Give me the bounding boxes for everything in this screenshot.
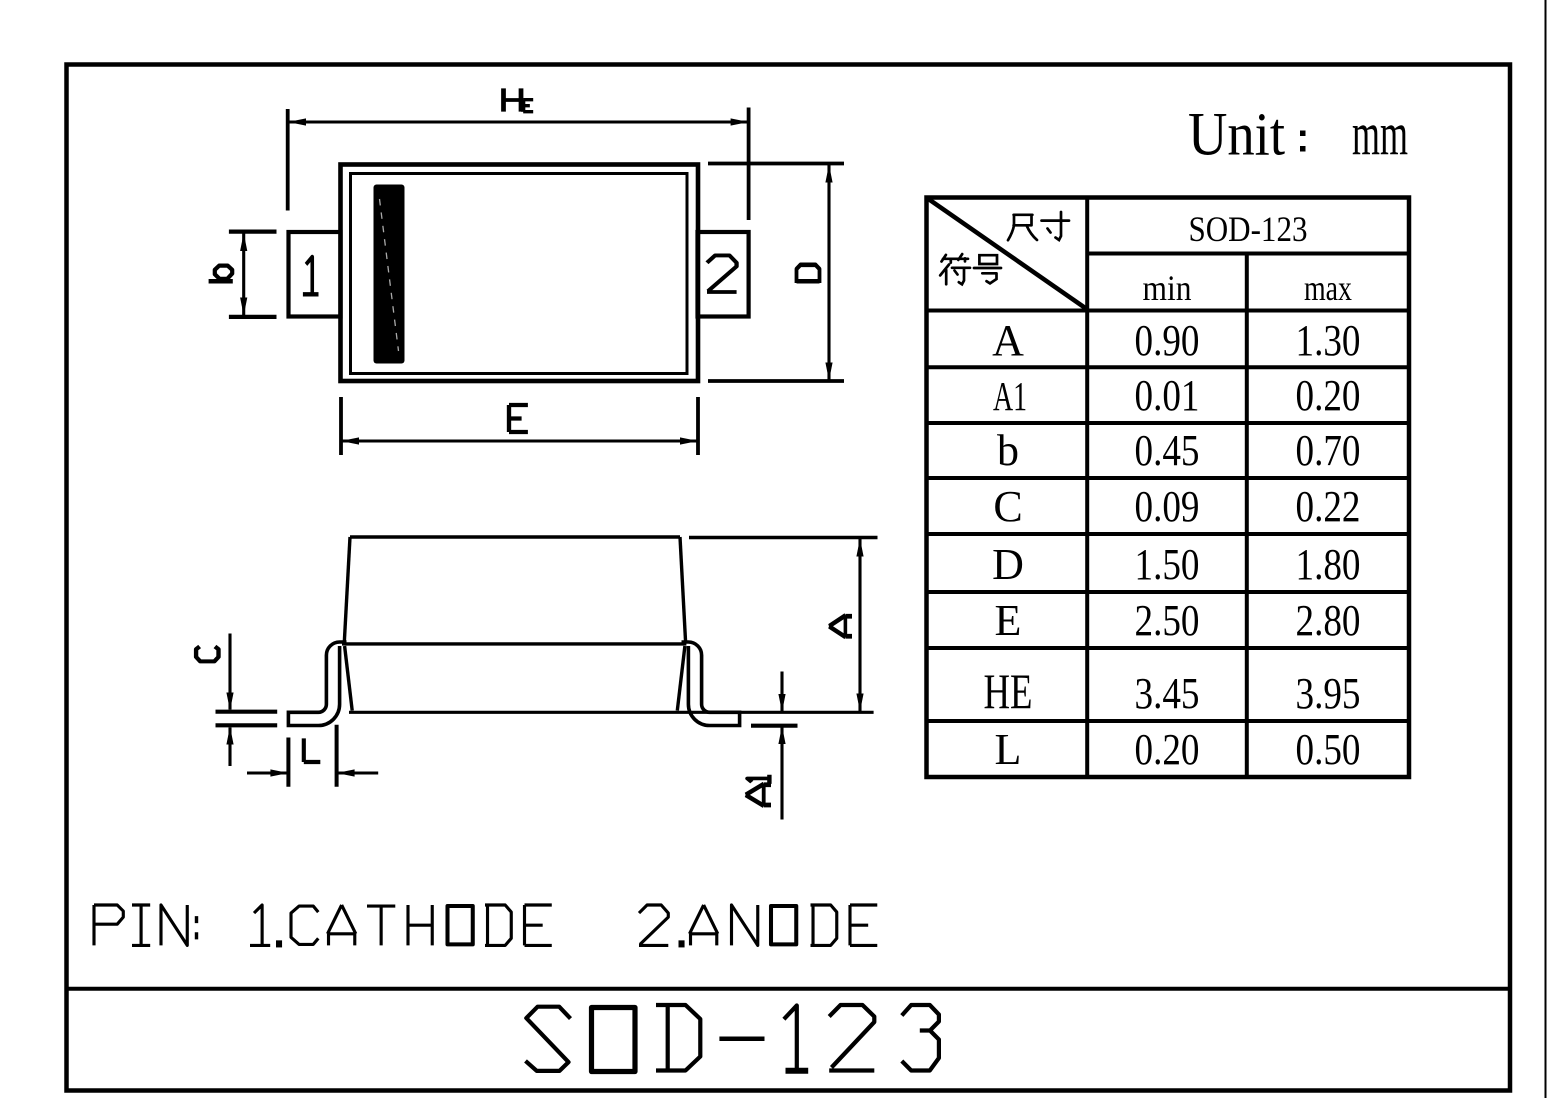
svg-text:0.01: 0.01 <box>1135 371 1200 420</box>
svg-text:max: max <box>1304 268 1352 308</box>
svg-text:0.20: 0.20 <box>1135 725 1200 774</box>
svg-text:0.09: 0.09 <box>1135 482 1200 531</box>
svg-text:Unit: Unit <box>1188 102 1285 169</box>
svg-text:SOD-123: SOD-123 <box>1189 209 1308 249</box>
svg-text:0.45: 0.45 <box>1135 426 1200 475</box>
svg-text:0.90: 0.90 <box>1135 316 1200 365</box>
svg-text:1.50: 1.50 <box>1135 540 1200 589</box>
svg-text:HE: HE <box>984 663 1033 719</box>
svg-text:2.80: 2.80 <box>1296 596 1361 645</box>
svg-text:2.50: 2.50 <box>1135 596 1200 645</box>
svg-text:3.95: 3.95 <box>1296 669 1361 718</box>
svg-text:min: min <box>1143 268 1192 308</box>
svg-text:A1: A1 <box>993 373 1027 419</box>
svg-text:0.22: 0.22 <box>1296 482 1361 531</box>
svg-text:mm: mm <box>1352 102 1408 169</box>
svg-text:1.80: 1.80 <box>1296 540 1361 589</box>
svg-text:C: C <box>993 482 1022 531</box>
svg-text:3.45: 3.45 <box>1135 669 1200 718</box>
svg-text:E: E <box>995 596 1022 645</box>
svg-text:0.70: 0.70 <box>1296 426 1361 475</box>
svg-text:0.50: 0.50 <box>1296 725 1361 774</box>
svg-text:b: b <box>997 426 1019 475</box>
svg-text:A: A <box>992 316 1024 365</box>
svg-text:D: D <box>992 540 1024 589</box>
svg-text:L: L <box>995 725 1022 774</box>
svg-text:1.30: 1.30 <box>1296 316 1361 365</box>
svg-text:0.20: 0.20 <box>1296 371 1361 420</box>
